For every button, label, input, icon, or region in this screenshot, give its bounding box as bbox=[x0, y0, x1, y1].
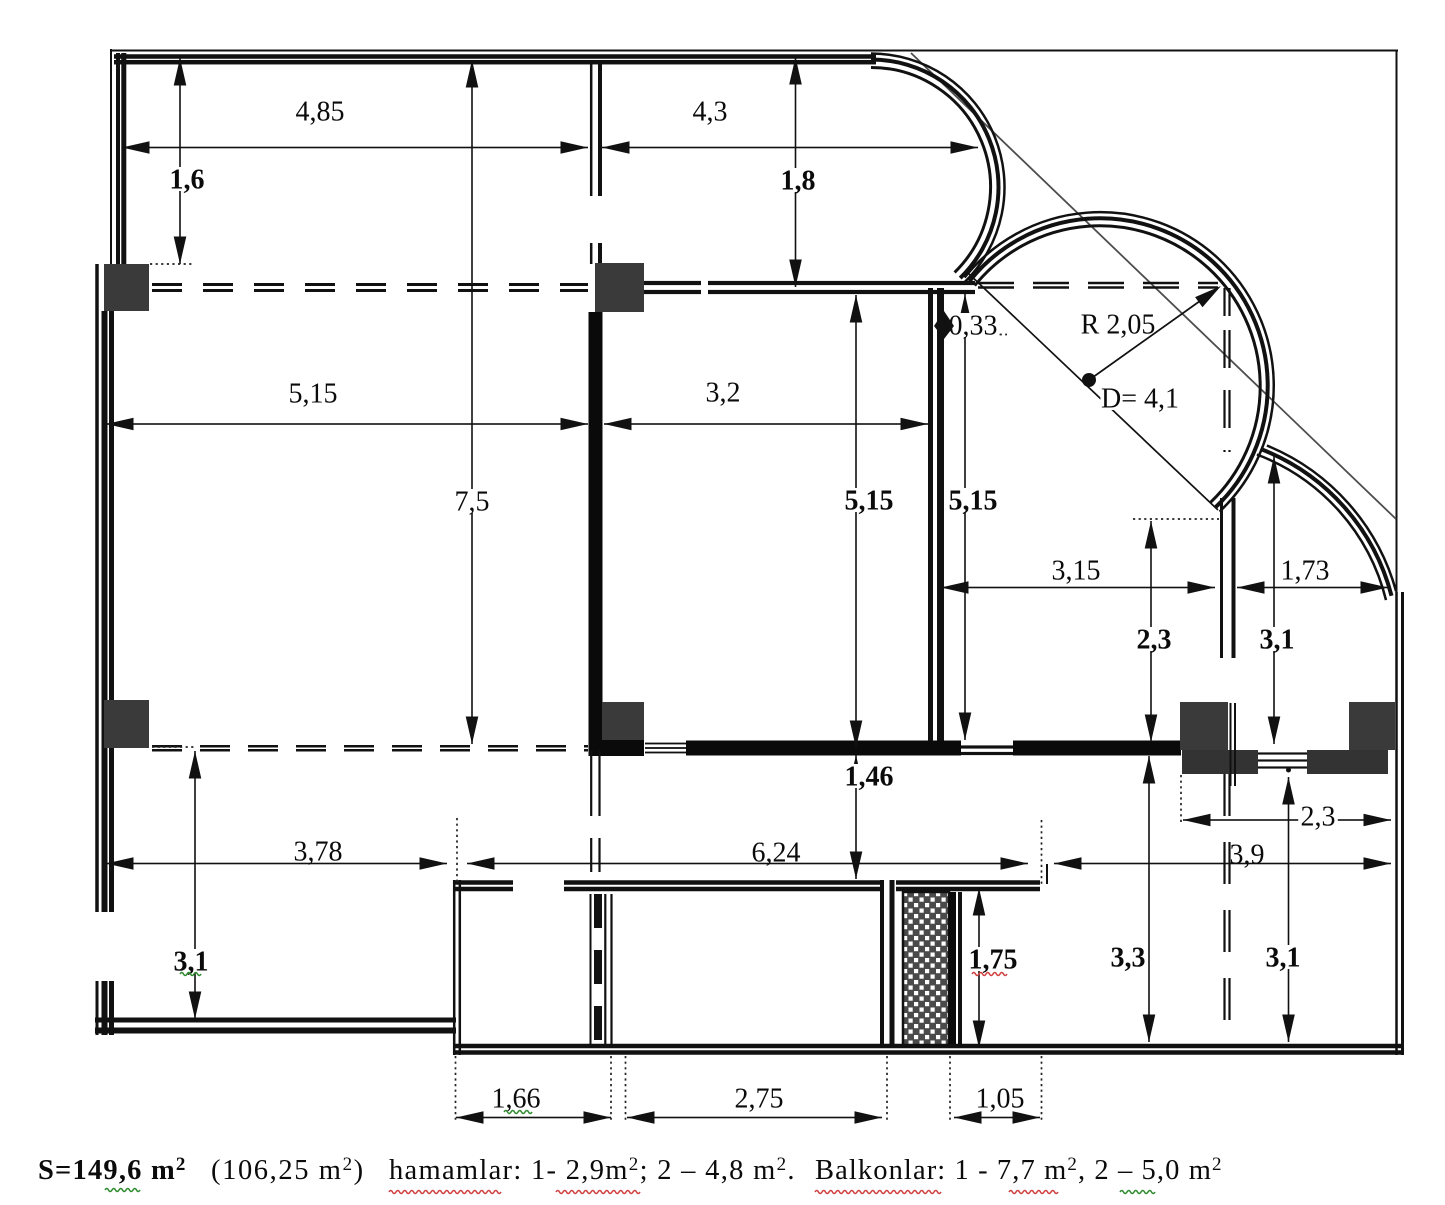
svg-text:1,66: 1,66 bbox=[492, 1084, 541, 1115]
svg-text:3,9: 3,9 bbox=[1230, 840, 1265, 871]
svg-text:1,46: 1,46 bbox=[845, 762, 894, 793]
svg-text:3,3: 3,3 bbox=[1111, 943, 1146, 974]
svg-text:Balkonlar: 1 - 7,7 m2, 2 – 5,0: Balkonlar: 1 - 7,7 m2, 2 – 5,0 m2 bbox=[815, 1154, 1223, 1186]
svg-text:3,78: 3,78 bbox=[294, 837, 343, 868]
svg-text:3,1: 3,1 bbox=[1260, 625, 1295, 656]
svg-text:2,75: 2,75 bbox=[735, 1084, 784, 1115]
svg-text:5,15: 5,15 bbox=[289, 379, 338, 410]
svg-text:5,15: 5,15 bbox=[845, 486, 894, 517]
svg-text:1,6: 1,6 bbox=[170, 165, 205, 196]
svg-text:3,2: 3,2 bbox=[706, 378, 741, 409]
svg-text:4,85: 4,85 bbox=[296, 97, 345, 128]
svg-text:3,1: 3,1 bbox=[1266, 943, 1301, 974]
svg-text:2,3: 2,3 bbox=[1137, 625, 1172, 656]
svg-text:R 2,05: R 2,05 bbox=[1081, 310, 1156, 341]
svg-text:6,24: 6,24 bbox=[752, 838, 801, 869]
svg-text:1,05: 1,05 bbox=[976, 1084, 1025, 1115]
svg-text:4,3: 4,3 bbox=[693, 97, 728, 128]
svg-text:D= 4,1: D= 4,1 bbox=[1101, 384, 1179, 415]
svg-text:hamamlar: 1- 2,9m2; 2 – 4,8 m2: hamamlar: 1- 2,9m2; 2 – 4,8 m2. bbox=[389, 1154, 796, 1186]
svg-text:7,5: 7,5 bbox=[455, 487, 490, 518]
svg-text:1,8: 1,8 bbox=[781, 166, 816, 197]
svg-text:S=149,6 m2: S=149,6 m2 bbox=[38, 1154, 187, 1186]
svg-text:1,73: 1,73 bbox=[1281, 556, 1330, 587]
svg-text:1,75: 1,75 bbox=[969, 945, 1018, 976]
svg-text:3,15: 3,15 bbox=[1052, 556, 1101, 587]
svg-text:(106,25 m2): (106,25 m2) bbox=[211, 1154, 365, 1186]
svg-text:2,3: 2,3 bbox=[1301, 802, 1336, 833]
svg-text:3,1: 3,1 bbox=[174, 947, 209, 978]
svg-text:0,33: 0,33 bbox=[949, 311, 998, 342]
svg-text:5,15: 5,15 bbox=[949, 486, 998, 517]
